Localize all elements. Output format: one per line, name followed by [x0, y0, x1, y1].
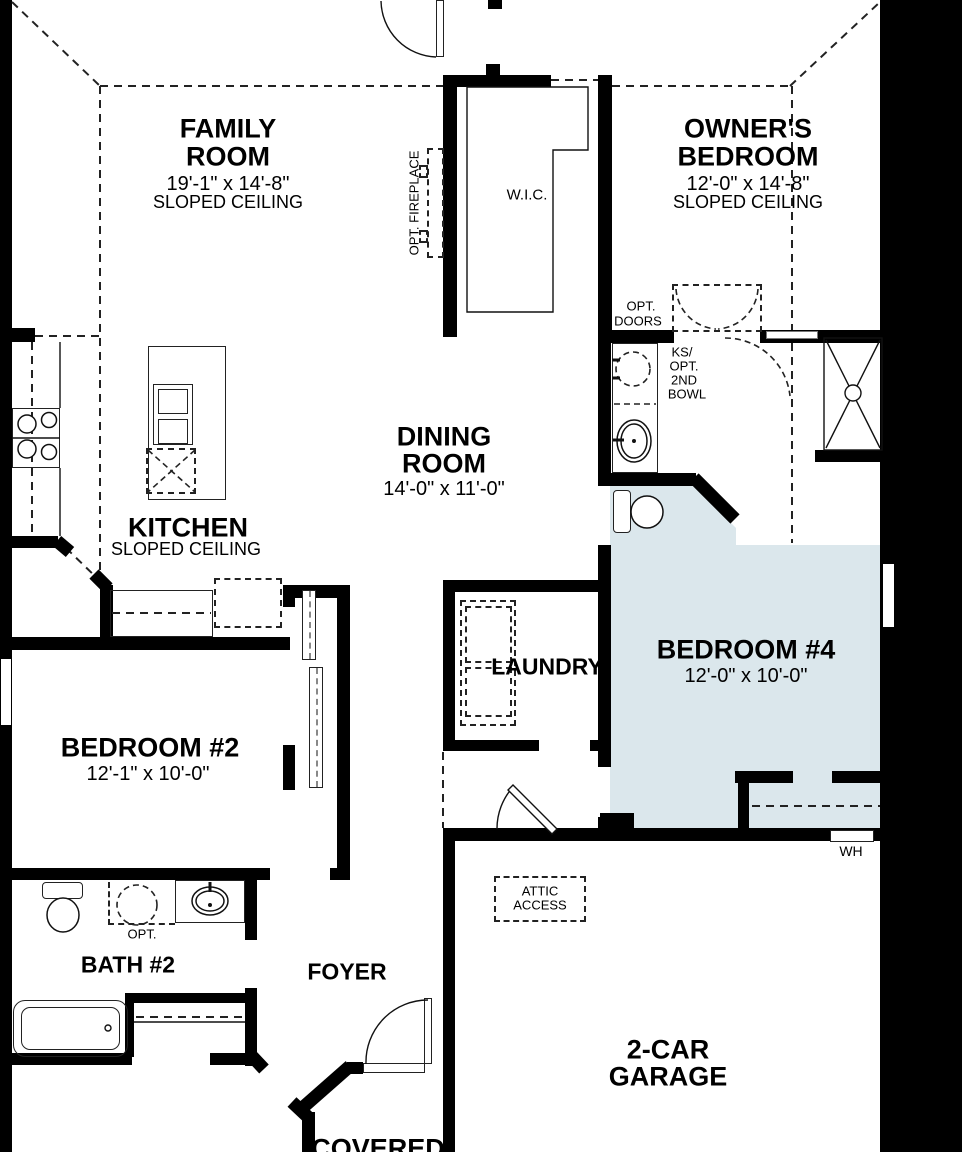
bedroom4-dims: 12'-0" x 10'-0"	[684, 666, 807, 686]
attic-access-label: ACCESS	[513, 899, 566, 912]
family-room-dims: 19'-1" x 14'-8"	[166, 174, 289, 194]
owners-bedroom-ceiling: SLOPED CEILING	[673, 193, 823, 211]
opt-sink-label: OPT.	[128, 928, 157, 941]
family-room-ceiling: SLOPED CEILING	[153, 193, 303, 211]
ks-opt-bowl-label: OPT.	[670, 360, 699, 373]
wic-label: W.I.C.	[507, 188, 548, 203]
bath2-label: BATH #2	[81, 954, 175, 977]
covered-patio-label: COVERED	[311, 1136, 445, 1152]
dining-room-dims: 14'-0" x 11'-0"	[383, 479, 505, 499]
bedroom4-label: BEDROOM #4	[657, 637, 836, 664]
bedroom2-dims: 12'-1" x 10'-0"	[86, 764, 209, 784]
opt-doors-label: OPT.	[627, 300, 656, 313]
kitchen-ceiling: SLOPED CEILING	[111, 540, 261, 558]
garage-label: 2-CAR	[627, 1037, 710, 1064]
laundry-label: LAUNDRY	[491, 656, 603, 679]
plan-linework	[0, 0, 962, 1152]
floor-plan: FAMILY ROOM 19'-1" x 14'-8" SLOPED CEILI…	[0, 0, 962, 1152]
opt-fireplace-label: OPT. FIREPLACE	[408, 151, 421, 256]
garage-label: GARAGE	[609, 1064, 728, 1091]
water-heater-label: WH	[839, 844, 862, 858]
family-room-label: FAMILY	[180, 116, 277, 143]
ks-opt-bowl-label: 2ND	[671, 374, 697, 387]
ks-opt-bowl-label: KS/	[672, 346, 693, 359]
owners-bedroom-dims: 12'-0" x 14'-8"	[686, 174, 809, 194]
attic-access-label: ATTIC	[522, 885, 559, 898]
family-room-label: ROOM	[186, 144, 270, 171]
opt-doors-label: DOORS	[614, 315, 662, 328]
dining-room-label: DINING	[397, 424, 492, 451]
kitchen-label: KITCHEN	[128, 515, 248, 542]
foyer-label: FOYER	[307, 961, 386, 984]
owners-bedroom-label: OWNER'S	[684, 116, 812, 143]
bedroom2-label: BEDROOM #2	[61, 735, 240, 762]
ks-opt-bowl-label: BOWL	[668, 388, 706, 401]
owners-bedroom-label: BEDROOM	[678, 144, 819, 171]
dining-room-label: ROOM	[402, 451, 486, 478]
